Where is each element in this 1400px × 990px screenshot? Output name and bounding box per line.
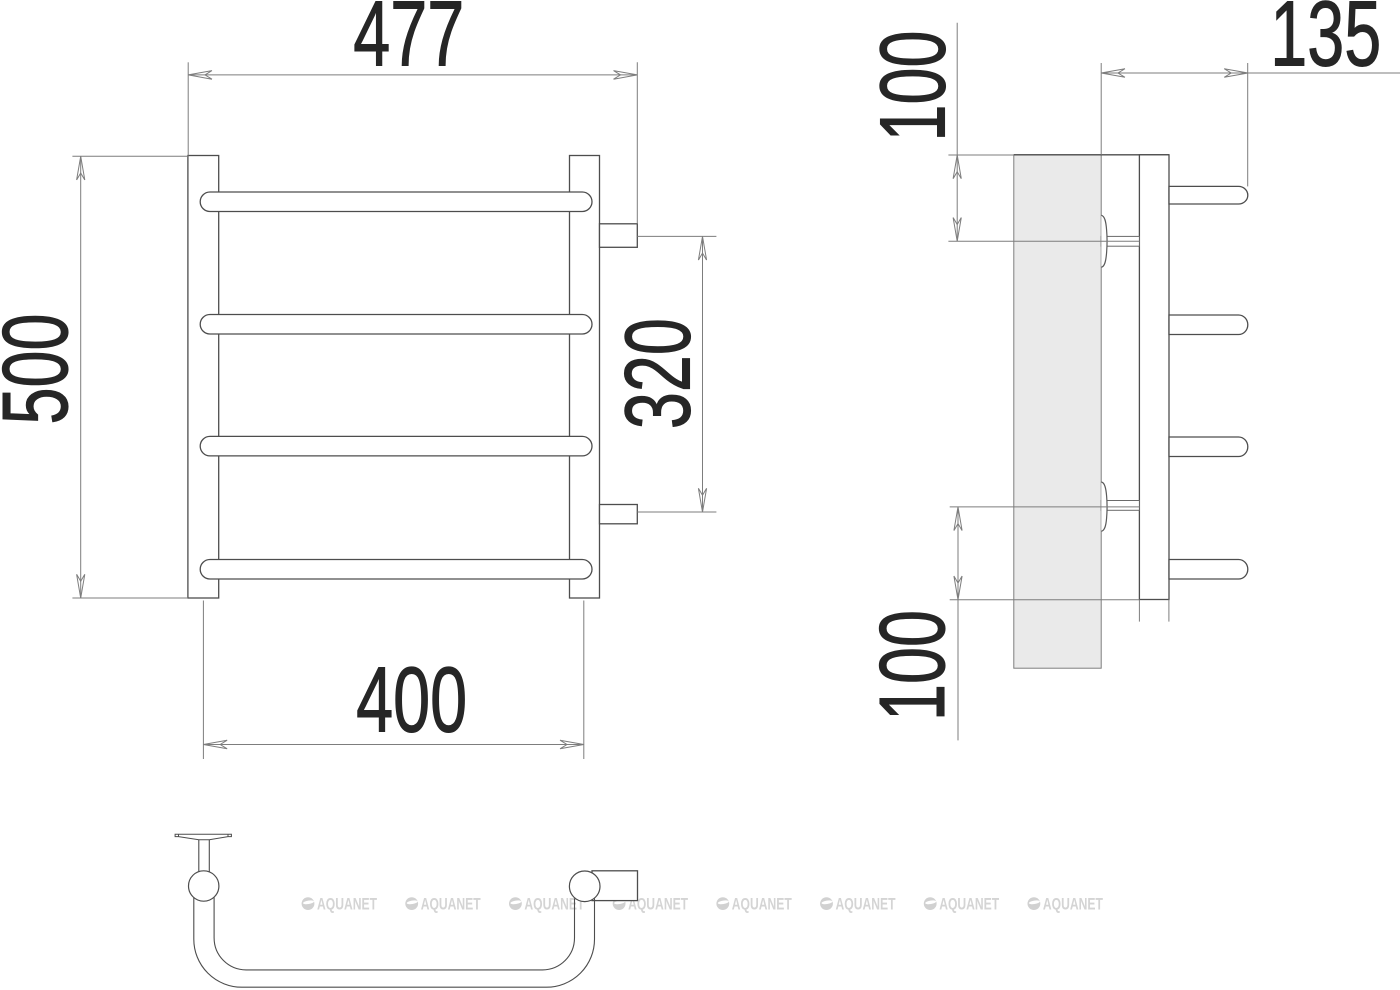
- svg-text:100: 100: [860, 610, 964, 721]
- svg-text:477: 477: [353, 0, 464, 86]
- svg-text:320: 320: [606, 318, 710, 429]
- svg-text:AQUANET: AQUANET: [421, 896, 481, 914]
- svg-text:AQUANET: AQUANET: [317, 896, 377, 914]
- svg-text:400: 400: [356, 648, 467, 752]
- svg-text:135: 135: [1270, 0, 1381, 85]
- svg-text:500: 500: [0, 314, 87, 425]
- svg-text:AQUANET: AQUANET: [939, 896, 999, 914]
- svg-text:100: 100: [860, 30, 964, 141]
- svg-text:AQUANET: AQUANET: [732, 896, 792, 914]
- svg-text:AQUANET: AQUANET: [836, 896, 896, 914]
- svg-text:AQUANET: AQUANET: [1043, 896, 1103, 914]
